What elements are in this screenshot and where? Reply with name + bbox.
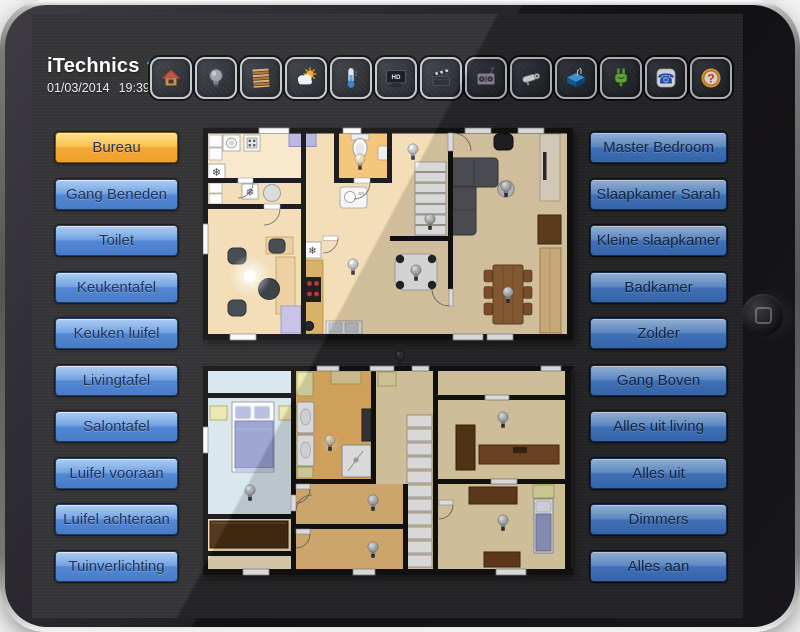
ground-floor-plan[interactable]: ❄ ❄ bbox=[203, 126, 573, 342]
app-title: iTechnics bbox=[47, 55, 140, 78]
toolbar-button-help[interactable]: ? bbox=[690, 57, 732, 99]
swimming-pool-icon bbox=[563, 65, 589, 91]
room-button-badkamer[interactable]: Badkamer bbox=[590, 272, 727, 303]
screen: iTechnics 01/03/2014 19:39 bbox=[32, 14, 743, 618]
movie-clapper-icon bbox=[428, 65, 454, 91]
room-button-kleine-slaapkamer[interactable]: Kleine slaapkamer bbox=[590, 225, 727, 256]
room-button-luifel-achteraan[interactable]: Luifel achteraan bbox=[55, 504, 178, 535]
toolbar-button-home[interactable] bbox=[150, 57, 192, 99]
status-time: 19:39 bbox=[119, 81, 150, 95]
toolbar-button-blinds[interactable] bbox=[240, 57, 282, 99]
tall-cabinet bbox=[540, 248, 561, 333]
tablet-frame: iTechnics 01/03/2014 19:39 bbox=[0, 0, 800, 632]
toolbar-button-camera[interactable] bbox=[510, 57, 552, 99]
light-glow-bureau-core bbox=[244, 270, 256, 282]
status-date: 01/03/2014 bbox=[47, 81, 110, 95]
tv-icon: HD bbox=[383, 65, 409, 91]
toolbar-button-lights[interactable] bbox=[195, 57, 237, 99]
telephone-icon: ☎ bbox=[653, 65, 679, 91]
speaker bbox=[494, 134, 513, 150]
hall-table bbox=[264, 185, 281, 202]
room-button-slaapkamer-sarah[interactable]: Slaapkamer Sarah bbox=[590, 179, 727, 210]
light-bulb-icon bbox=[203, 65, 229, 91]
toolbar-button-movies[interactable] bbox=[420, 57, 462, 99]
home-button[interactable] bbox=[742, 294, 784, 336]
home-icon bbox=[158, 65, 184, 91]
upper-floor-plan[interactable] bbox=[203, 363, 573, 576]
tv-cabinet bbox=[540, 134, 560, 201]
hall-cabinet bbox=[378, 372, 396, 386]
toolbar: HD ♪ bbox=[150, 57, 732, 99]
stairs-upper bbox=[407, 415, 432, 567]
thermometer-icon bbox=[338, 65, 364, 91]
weather-icon bbox=[293, 65, 319, 91]
room-button-gang-beneden[interactable]: Gang Beneden bbox=[55, 179, 178, 210]
room-button-gang-boven[interactable]: Gang Boven bbox=[590, 365, 727, 396]
toolbar-button-tv[interactable]: HD bbox=[375, 57, 417, 99]
toolbar-button-audio[interactable]: ♪ bbox=[465, 57, 507, 99]
boiler bbox=[340, 187, 367, 208]
svg-text:♪: ♪ bbox=[489, 67, 495, 77]
right-button-column: Master Bedroom Slaapkamer Sarah Kleine s… bbox=[590, 132, 727, 582]
security-camera-icon bbox=[518, 65, 544, 91]
wardrobe bbox=[210, 521, 288, 548]
freezer: ❄ bbox=[208, 164, 225, 180]
nightstand-left bbox=[210, 406, 227, 420]
scene-button-dimmers[interactable]: Dimmers bbox=[590, 504, 727, 535]
room-button-bureau[interactable]: Bureau bbox=[55, 132, 178, 163]
svg-text:❄: ❄ bbox=[308, 246, 316, 257]
audio-system-icon: ♪ bbox=[473, 65, 499, 91]
toolbar-button-pool[interactable] bbox=[555, 57, 597, 99]
status-datetime: 01/03/2014 19:39 bbox=[47, 81, 165, 95]
room-button-luifel-vooraan[interactable]: Luifel vooraan bbox=[55, 458, 178, 489]
room-button-salontafel[interactable]: Salontafel bbox=[55, 411, 178, 442]
toolbar-button-phone[interactable]: ☎ bbox=[645, 57, 687, 99]
toolbar-button-climate[interactable] bbox=[330, 57, 372, 99]
scene-button-alles-uit-living[interactable]: Alles uit living bbox=[590, 411, 727, 442]
help-icon: ? bbox=[698, 65, 724, 91]
left-button-column: Bureau Gang Beneden Toilet Keukentafel K… bbox=[55, 132, 178, 582]
room-button-livingtafel[interactable]: Livingtafel bbox=[55, 365, 178, 396]
toolbar-button-weather[interactable] bbox=[285, 57, 327, 99]
svg-text:☎: ☎ bbox=[657, 72, 674, 88]
svg-text:❄: ❄ bbox=[212, 167, 221, 179]
room-button-keukentafel[interactable]: Keukentafel bbox=[55, 272, 178, 303]
room-button-keuken-luifel[interactable]: Keuken luifel bbox=[55, 318, 178, 349]
power-plug-icon bbox=[608, 65, 634, 91]
toolbar-button-power[interactable] bbox=[600, 57, 642, 99]
cabinet-brown bbox=[538, 215, 561, 244]
svg-text:?: ? bbox=[707, 71, 714, 85]
room-button-master-bedroom[interactable]: Master Bedroom bbox=[590, 132, 727, 163]
room-button-toilet[interactable]: Toilet bbox=[55, 225, 178, 256]
scene-button-alles-aan[interactable]: Alles aan bbox=[590, 551, 727, 582]
svg-text:❄: ❄ bbox=[246, 188, 254, 199]
window-blinds-icon bbox=[248, 65, 274, 91]
room-button-tuinverlichting[interactable]: Tuinverlichting bbox=[55, 551, 178, 582]
svg-text:HD: HD bbox=[392, 74, 401, 81]
header: iTechnics 01/03/2014 19:39 bbox=[47, 55, 165, 95]
scene-button-alles-uit[interactable]: Alles uit bbox=[590, 458, 727, 489]
room-button-zolder[interactable]: Zolder bbox=[590, 318, 727, 349]
double-bed bbox=[232, 402, 274, 472]
